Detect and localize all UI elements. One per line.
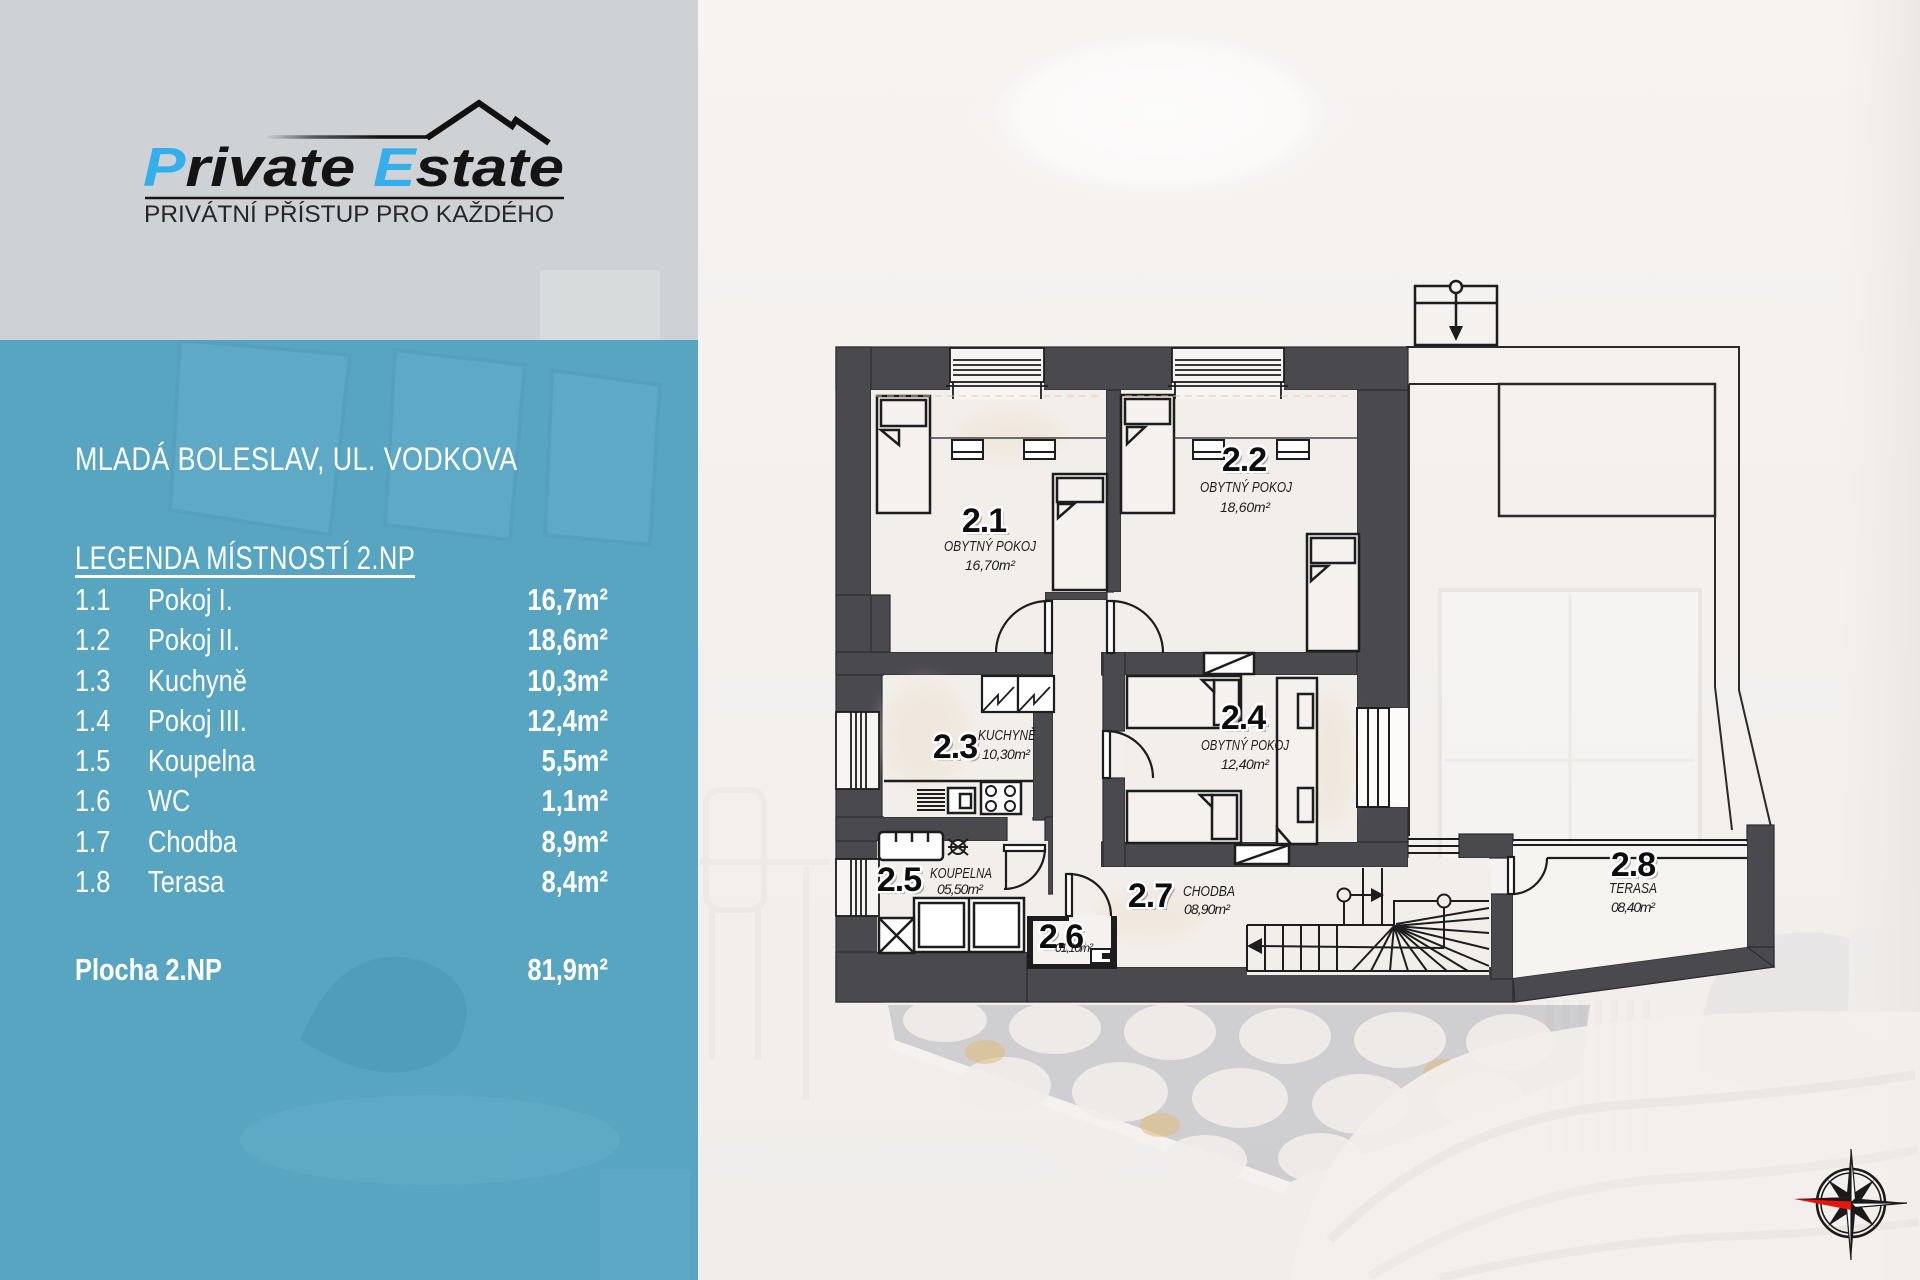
svg-text:CHODBA: CHODBA bbox=[1183, 883, 1235, 900]
svg-text:OBYTNÝ POKOJ: OBYTNÝ POKOJ bbox=[1200, 479, 1292, 496]
svg-text:PRIVÁTNÍ PŘÍSTUP PRO KAŽDÉHO: PRIVÁTNÍ PŘÍSTUP PRO KAŽDÉHO bbox=[144, 201, 554, 228]
svg-text:2.4: 2.4 bbox=[1221, 699, 1266, 737]
svg-text:2.1: 2.1 bbox=[962, 502, 1006, 540]
svg-text:18,60m²: 18,60m² bbox=[1220, 499, 1271, 515]
svg-text:2.2: 2.2 bbox=[1222, 441, 1266, 479]
svg-text:12,40m²: 12,40m² bbox=[1221, 756, 1270, 772]
svg-text:2.5: 2.5 bbox=[877, 861, 921, 899]
svg-text:05,50m²: 05,50m² bbox=[937, 881, 984, 897]
svg-text:Private Estate: Private Estate bbox=[143, 136, 564, 198]
svg-text:OBYTNÝ POKOJ: OBYTNÝ POKOJ bbox=[944, 538, 1036, 555]
svg-text:08,90m²: 08,90m² bbox=[1184, 901, 1231, 917]
svg-text:10,30m²: 10,30m² bbox=[982, 746, 1031, 762]
svg-text:2.8: 2.8 bbox=[1611, 846, 1655, 884]
svg-text:OBYTNÝ POKOJ: OBYTNÝ POKOJ bbox=[1201, 737, 1289, 754]
svg-text:KUCHYNĚ: KUCHYNĚ bbox=[978, 727, 1037, 744]
svg-text:2.7: 2.7 bbox=[1128, 877, 1172, 915]
svg-text:KOUPELNA: KOUPELNA bbox=[930, 865, 992, 882]
svg-text:01,10m²: 01,10m² bbox=[1055, 941, 1094, 955]
svg-text:TERASA: TERASA bbox=[1609, 880, 1657, 897]
svg-text:08,40m²: 08,40m² bbox=[1611, 899, 1656, 915]
svg-text:2.3: 2.3 bbox=[933, 728, 977, 766]
svg-text:16,70m²: 16,70m² bbox=[965, 557, 1016, 573]
